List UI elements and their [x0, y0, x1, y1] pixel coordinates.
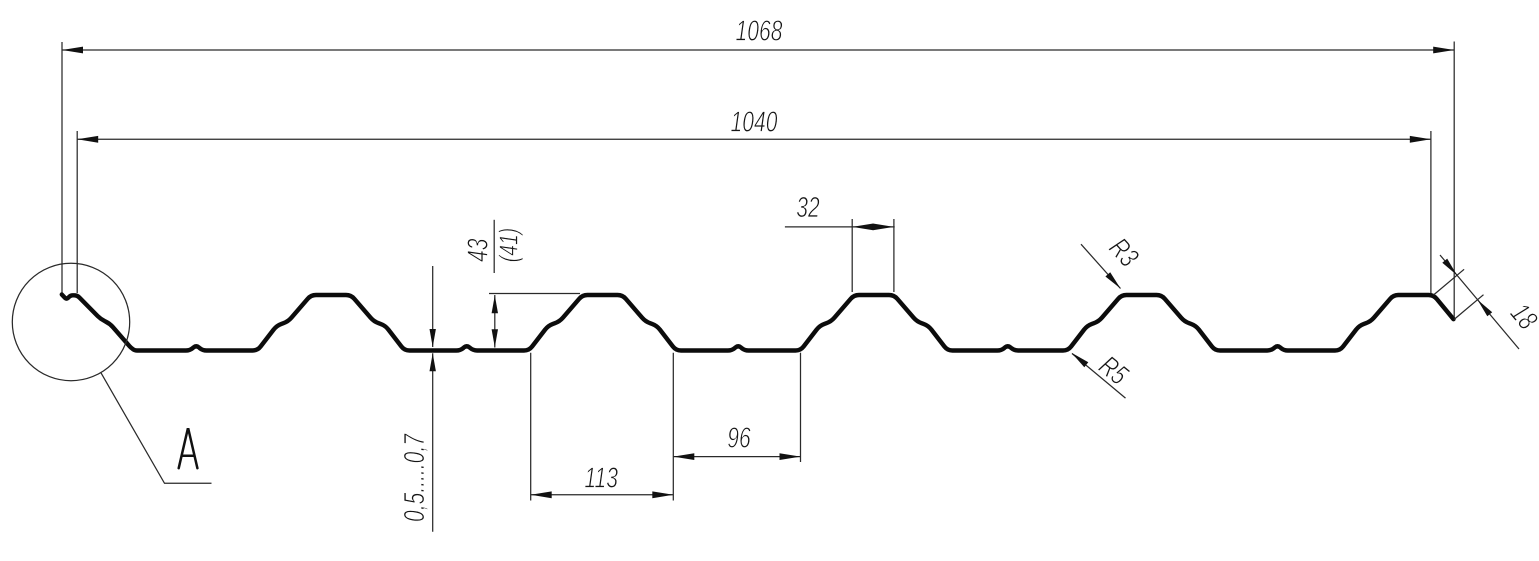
svg-text:1040: 1040	[731, 106, 778, 138]
svg-text:96: 96	[727, 422, 751, 454]
svg-text:43: 43	[462, 238, 494, 262]
svg-text:0,5.....0,7: 0,5.....0,7	[399, 433, 431, 522]
svg-text:(41): (41)	[494, 228, 524, 262]
svg-text:1068: 1068	[736, 15, 783, 47]
svg-text:113: 113	[584, 462, 618, 494]
svg-text:32: 32	[796, 192, 820, 224]
